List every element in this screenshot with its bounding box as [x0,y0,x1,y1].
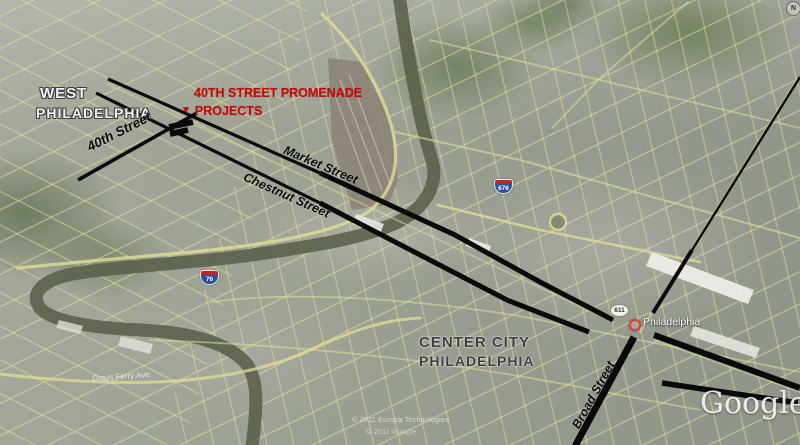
map-canvas[interactable]: WEST PHILADELPHIA CENTER CITY PHILADELPH… [0,0,800,445]
ridge-ave-road [552,2,688,128]
building-industrial-1 [118,336,153,354]
route-611-number: 611 [614,307,625,314]
region-label-west-line1: WEST [40,85,87,102]
compass-letter: N [791,5,796,12]
compass-icon[interactable]: N [786,1,800,16]
copyright-line-1: © 2011 Europa Technologies [352,417,449,424]
broad-street-line-south [575,337,634,445]
route-611-shield-icon: 611 [610,304,629,317]
philadelphia-placemark-label[interactable]: Philadelphia [643,316,700,328]
arrow-down-icon: ▼ [181,104,191,118]
broad-street-line-north-thin [692,77,800,250]
girard-ave-road [430,40,800,128]
promenade-annotation-line2: ▼ PROJECTS [181,104,262,118]
google-logo: Google [700,386,800,421]
i676-road [438,205,700,262]
chestnut-street-line-west [320,203,589,332]
spring-garden-road [395,132,800,238]
copyright-line-2: © 2011 Google [366,429,417,436]
interstate-76-number: 76 [206,276,213,285]
project-site-marker [169,122,193,134]
interstate-676-number: 676 [498,185,509,194]
region-label-center-city-line2: PHILADELPHIA [419,353,534,369]
placemark-icon[interactable] [629,319,641,331]
region-label-center-city-line1: CENTER CITY [419,334,530,351]
promenade-annotation-line1: 40TH STREET PROMENADE [194,86,362,100]
promenade-annotation-text: PROJECTS [195,104,262,118]
logan-circle [550,214,566,230]
